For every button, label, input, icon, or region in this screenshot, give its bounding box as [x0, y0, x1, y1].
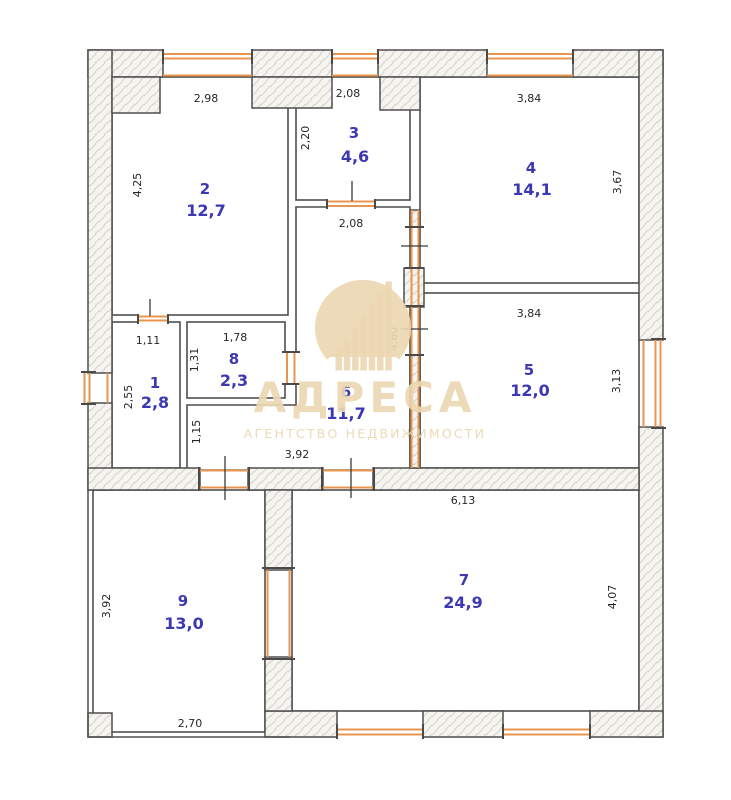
- dim-room1-left: 2,55: [122, 385, 135, 410]
- room-7-area: 24,9: [443, 593, 482, 612]
- dim-room3-left: 2,20: [299, 126, 312, 151]
- room-1-area: 2,8: [141, 393, 169, 412]
- room-4-number: 4: [526, 159, 536, 177]
- room-4-area: 14,1: [512, 180, 551, 199]
- dim-room3-top: 2,08: [336, 87, 361, 100]
- room-9-number: 9: [178, 592, 188, 610]
- room-9-area: 13,0: [164, 614, 203, 633]
- room-8-number: 8: [229, 350, 239, 368]
- dim-room7-right: 4,07: [606, 585, 619, 610]
- dim-room1-top: 1,11: [136, 334, 161, 347]
- room-5-number: 5: [524, 361, 534, 379]
- dim-room4-right: 3,67: [611, 170, 624, 195]
- room-8-area: 2,3: [220, 371, 248, 390]
- watermark-brand: АДРЕСА: [254, 373, 477, 422]
- room-2-number: 2: [200, 180, 210, 198]
- dim-room6-bottom: 3,92: [285, 448, 310, 461]
- room-3-number: 3: [349, 124, 359, 142]
- dim-room9-bottom: 2,70: [178, 717, 203, 730]
- dim-room5-right: 3,13: [610, 369, 623, 394]
- dim-room5-top: 3,84: [517, 307, 542, 320]
- pier-room3-right: [380, 77, 420, 110]
- room-2-area: 12,7: [186, 201, 225, 220]
- dim-room2-left: 4,25: [131, 173, 144, 198]
- agency-logo-icon: [319, 282, 407, 370]
- dim-room8-top: 1,78: [223, 331, 248, 344]
- dim-room9-left: 3,92: [100, 594, 113, 619]
- floor-plan: 2,98 4,25 2,08 2,20 3,84 3,67 2,08 1,11 …: [0, 0, 731, 800]
- watermark-tagline: АГЕНТСТВО НЕДВИЖИМОСТИ: [244, 426, 486, 441]
- room-5-area: 12,0: [510, 381, 549, 400]
- porch-corner-post: [88, 713, 112, 737]
- dim-room8-left: 1,31: [188, 348, 201, 373]
- room-7-number: 7: [459, 571, 469, 589]
- dim-room3-bottom: 2,08: [339, 217, 364, 230]
- room-9: [93, 490, 265, 732]
- dim-room4-top: 3,84: [517, 92, 542, 105]
- pier-room2-room3: [252, 77, 332, 108]
- dim-room7-top: 6,13: [451, 494, 476, 507]
- room-1-number: 1: [150, 374, 160, 392]
- dim-room6-strip-left: 1,15: [190, 420, 203, 445]
- dim-room2-top: 2,98: [194, 92, 219, 105]
- pier-top-left: [112, 77, 160, 113]
- room-3-area: 4,6: [341, 147, 369, 166]
- floor-plan-drawing: 2,98 4,25 2,08 2,20 3,84 3,67 2,08 1,11 …: [0, 0, 731, 800]
- pier-partition: [404, 268, 424, 307]
